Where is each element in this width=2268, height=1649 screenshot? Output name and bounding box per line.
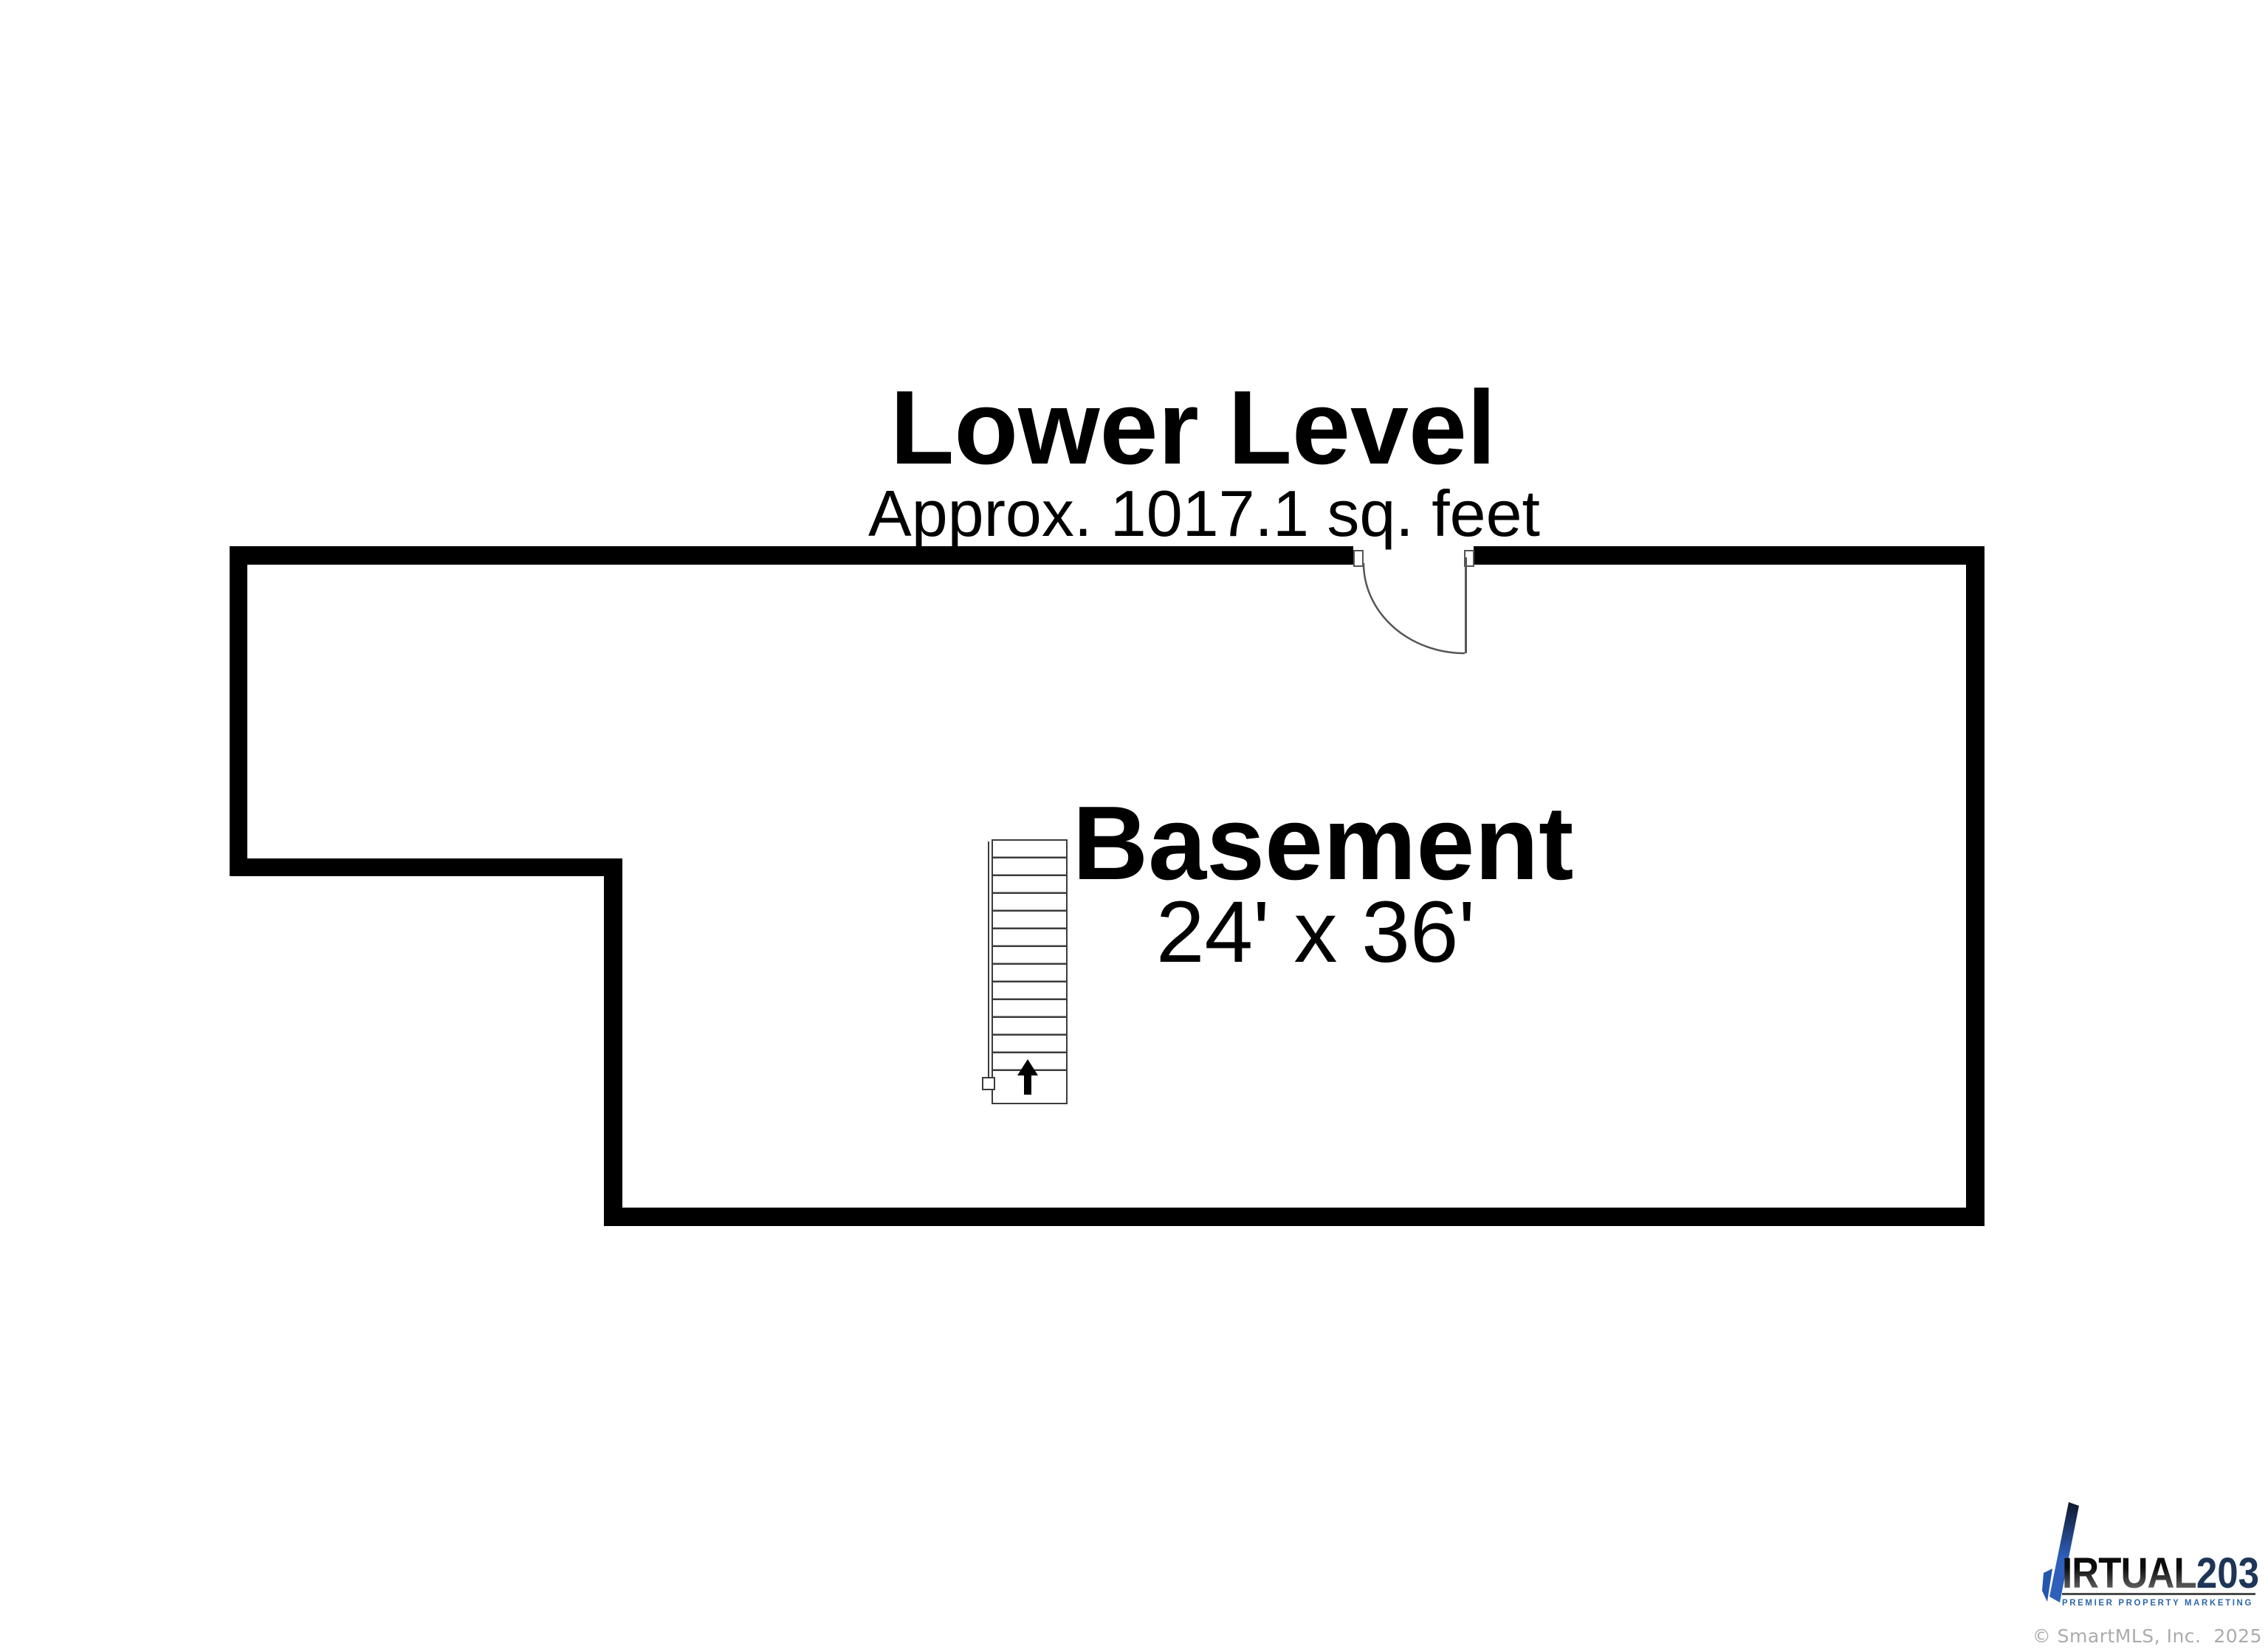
logo-divider-line <box>2062 1593 2255 1595</box>
stairs-up-arrow-shaft <box>1024 1074 1031 1095</box>
floor-plan: Basement 24' x 36' <box>0 0 2268 1649</box>
logo-text: IRTUAL203 <box>2062 1553 2259 1594</box>
wall-notch-horizontal <box>230 858 622 876</box>
wall-top-right-segment <box>1474 546 1984 565</box>
stair-railing <box>988 841 989 1085</box>
door-swing-arc-icon <box>1358 557 1469 657</box>
stair-treads <box>993 841 1066 1075</box>
wall-bottom <box>604 1208 1984 1226</box>
wall-right <box>1966 546 1984 1226</box>
wall-left <box>230 546 247 876</box>
stairs-up-arrow-icon <box>1017 1059 1038 1075</box>
logo-text-203: 203 <box>2196 1553 2259 1594</box>
wall-notch-vertical <box>604 858 622 1226</box>
copyright-text: © SmartMLS, Inc. 2025 <box>2032 1625 2262 1647</box>
room-label: Basement <box>1073 791 1574 896</box>
wall-top-left-segment <box>230 546 1353 565</box>
stair-newel-post <box>982 1077 995 1090</box>
room-dimensions: 24' x 36' <box>1156 889 1475 976</box>
logo-tagline: PREMIER PROPERTY MARKETING <box>2062 1597 2268 1608</box>
logo-text-irtual: IRTUAL <box>2062 1553 2196 1594</box>
